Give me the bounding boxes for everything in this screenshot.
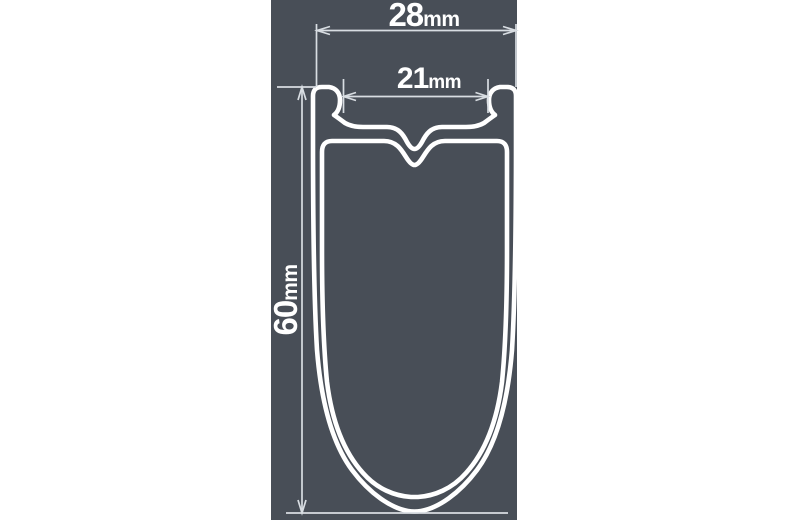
rim-profile	[313, 87, 516, 512]
page-background: 28mm 21mm 60mm	[0, 0, 789, 520]
bead-width-label: 21mm	[397, 62, 461, 95]
rim-inner-profile	[322, 141, 507, 497]
dimension-bead-width: 21mm	[344, 62, 489, 113]
depth-label: 60mm	[267, 264, 304, 335]
dimension-depth: 60mm	[267, 87, 508, 513]
outer-width-label: 28mm	[388, 0, 459, 33]
rim-cross-section-drawing: 28mm 21mm 60mm	[0, 0, 789, 520]
